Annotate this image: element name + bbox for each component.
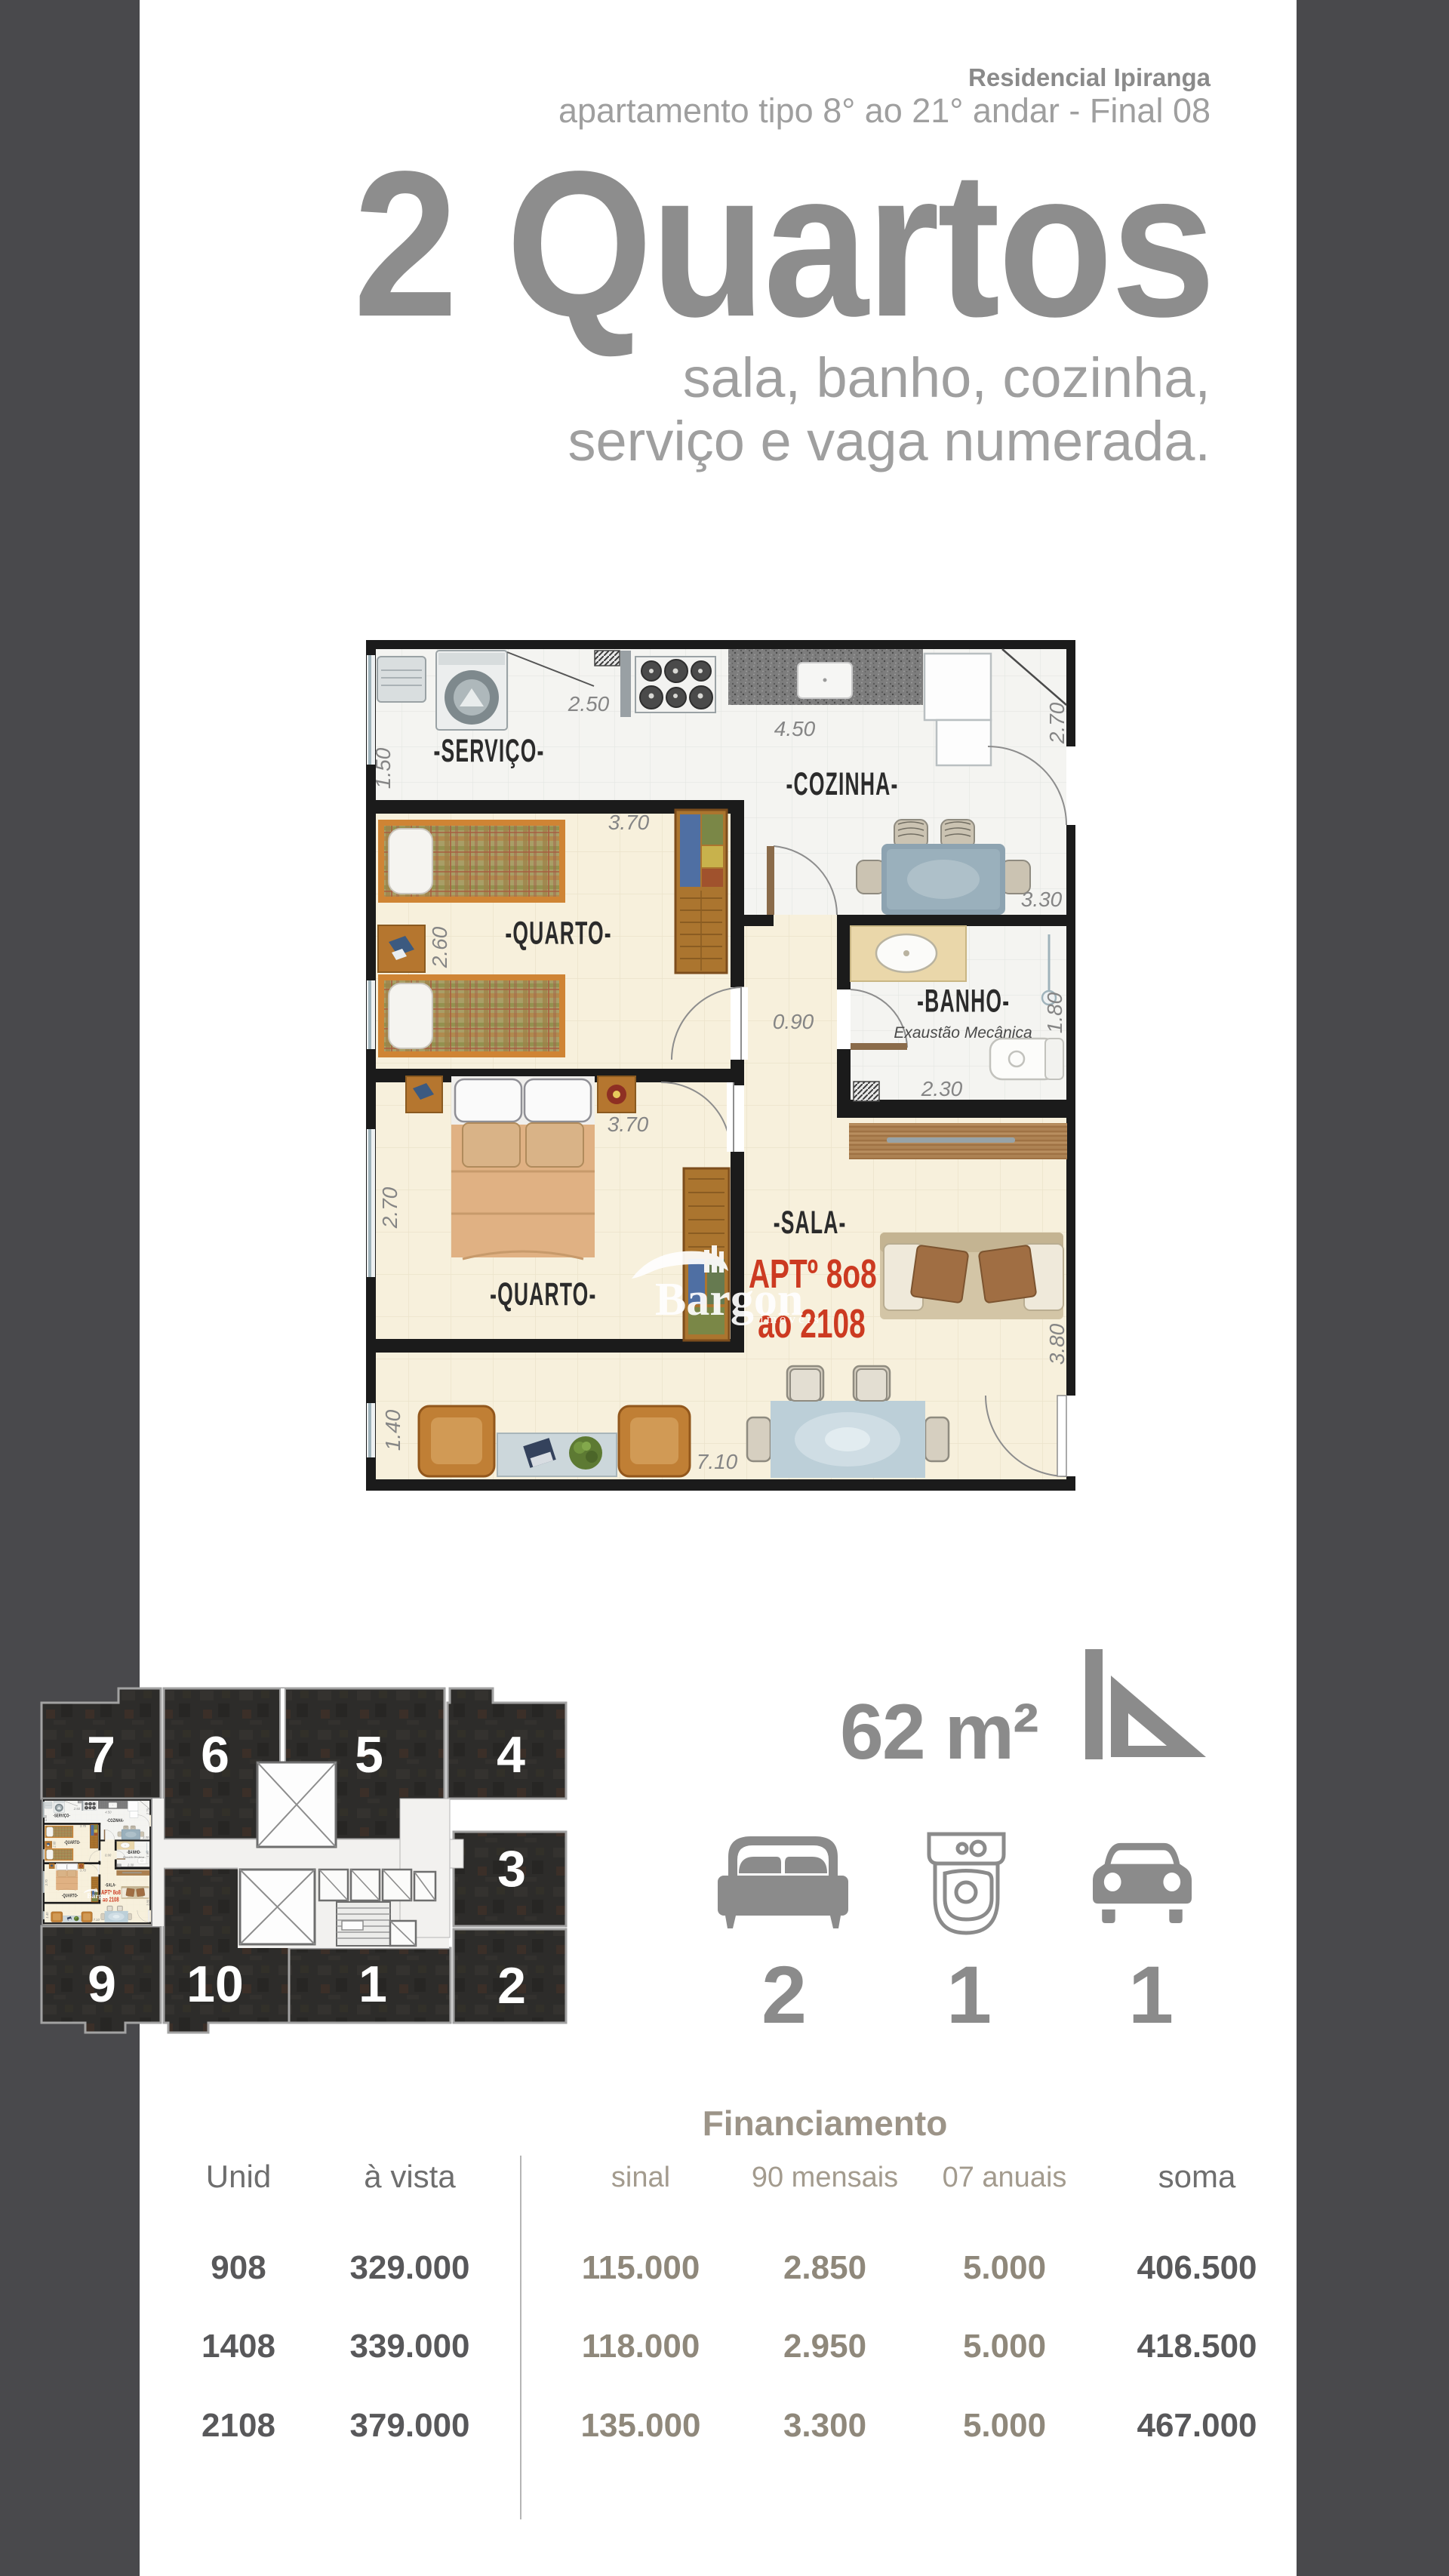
svg-text:2.30: 2.30 [921,1077,963,1100]
svg-text:-SALA-: -SALA- [774,1205,847,1241]
svg-text:10: 10 [186,1956,244,2013]
svg-text:-QUARTO-: -QUARTO- [490,1276,596,1313]
svg-text:6: 6 [201,1726,229,1784]
svg-text:1.40: 1.40 [381,1409,405,1451]
svg-text:3: 3 [497,1840,526,1897]
svg-text:2.70: 2.70 [1045,702,1069,744]
svg-text:1.50: 1.50 [371,747,395,789]
svg-text:4: 4 [497,1726,525,1784]
svg-text:3.80: 3.80 [1045,1323,1069,1365]
svg-text:1.80: 1.80 [1043,992,1066,1033]
svg-text:4.50: 4.50 [774,717,816,740]
svg-text:0.90: 0.90 [773,1010,814,1033]
svg-text:1: 1 [358,1956,387,2013]
svg-text:2.50: 2.50 [568,692,610,716]
svg-text:-SERVIÇO-: -SERVIÇO- [434,733,545,769]
svg-text:9: 9 [88,1956,116,2013]
svg-text:imóveis: imóveis [760,1312,822,1326]
svg-text:Exaustão Mecânica: Exaustão Mecânica [894,1024,1032,1042]
svg-text:7: 7 [87,1726,115,1784]
svg-text:3.30: 3.30 [1021,888,1063,911]
svg-text:2: 2 [497,1957,526,2014]
svg-text:-QUARTO-: -QUARTO- [505,915,611,951]
svg-text:3.70: 3.70 [608,811,650,834]
svg-text:3.70: 3.70 [608,1113,649,1136]
svg-text:5: 5 [355,1726,383,1784]
svg-text:-BANHO-: -BANHO- [917,983,1010,1019]
svg-text:2.60: 2.60 [428,926,451,968]
svg-text:2.70: 2.70 [378,1186,401,1229]
svg-text:7.10: 7.10 [697,1450,738,1473]
svg-text:-COZINHA-: -COZINHA- [786,766,899,802]
